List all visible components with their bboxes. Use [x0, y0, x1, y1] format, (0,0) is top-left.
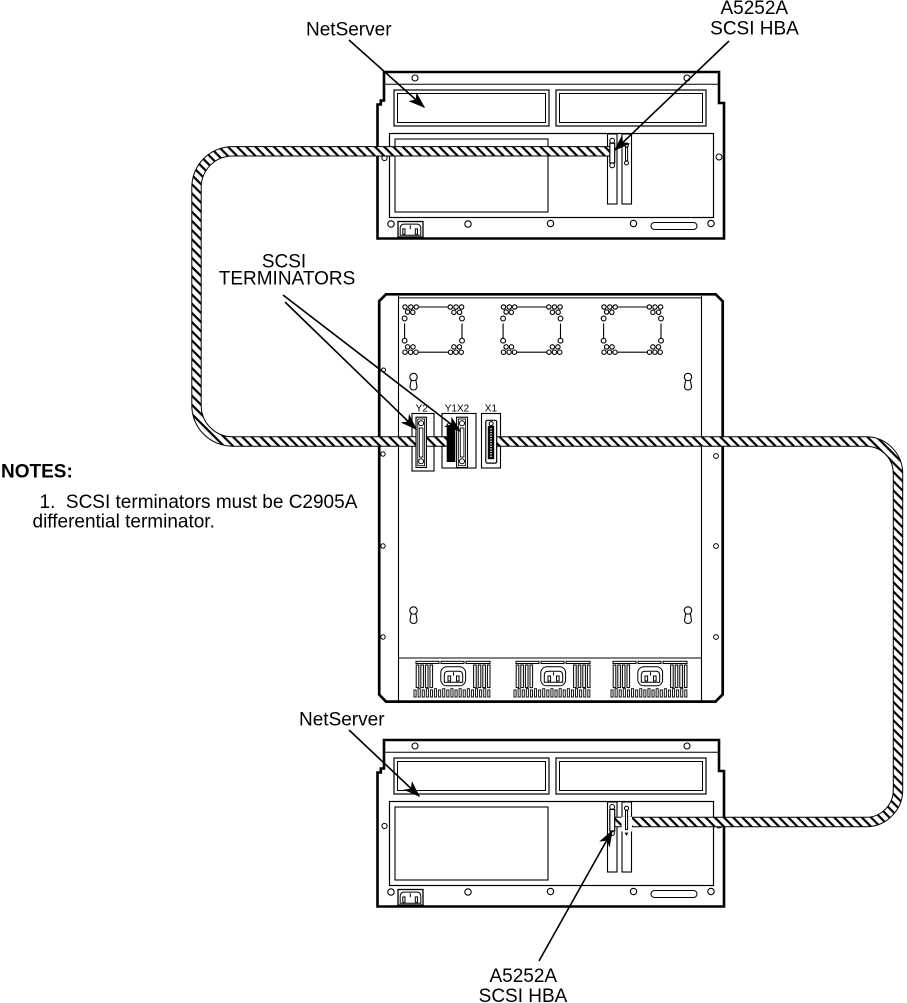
svg-text:A5252A: A5252A — [720, 0, 788, 19]
svg-text:NetServer: NetServer — [299, 710, 385, 731]
svg-text:NOTES:: NOTES: — [1, 462, 73, 483]
svg-text:1. SCSI terminators must be C: 1. SCSI terminators must be C2905A — [40, 492, 358, 513]
svg-text:X1: X1 — [485, 404, 498, 415]
svg-text:SCSI HBA: SCSI HBA — [710, 19, 799, 40]
svg-text:NetServer: NetServer — [306, 20, 392, 41]
svg-text:differential terminator.: differential terminator. — [33, 512, 215, 533]
svg-text:A5252A: A5252A — [489, 966, 557, 987]
svg-text:SCSI HBA: SCSI HBA — [479, 986, 568, 1003]
svg-text:Y1X2: Y1X2 — [445, 404, 470, 415]
svg-text:TERMINATORS: TERMINATORS — [219, 269, 356, 290]
